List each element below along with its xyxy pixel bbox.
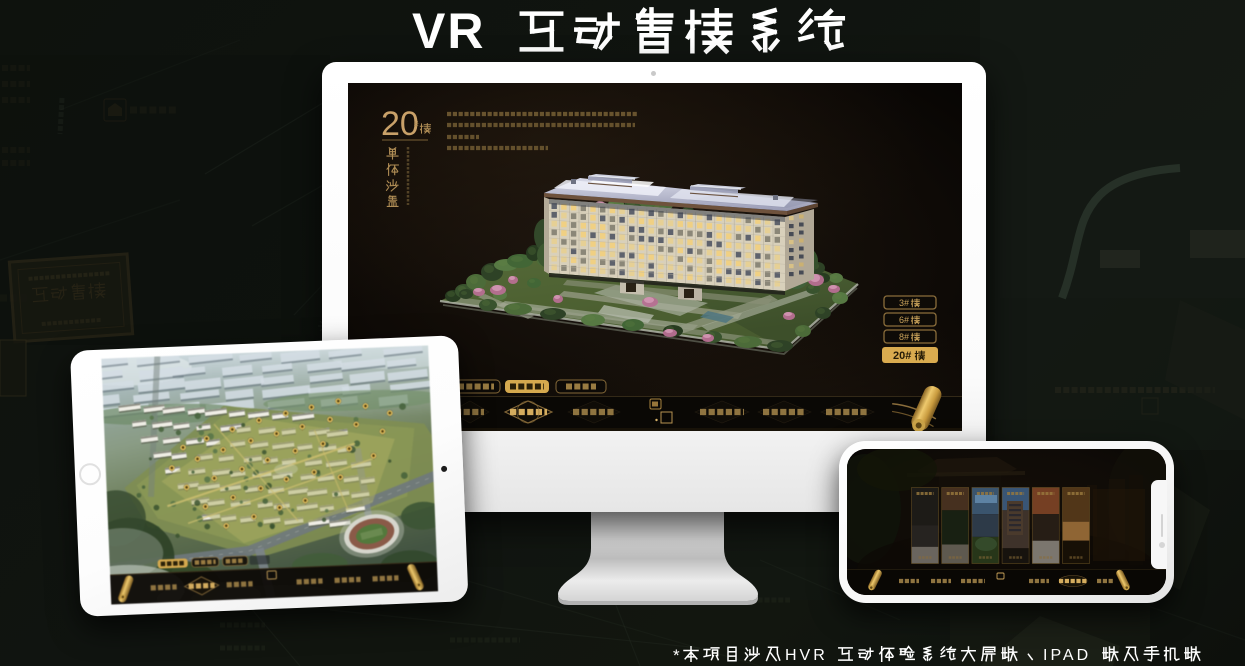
svg-text:8#: 8# [899,332,909,342]
svg-text:#: # [414,120,419,129]
svg-text:VR: VR [412,3,485,55]
svg-text:*: * [673,646,680,665]
svg-text:3#: 3# [899,298,909,308]
svg-text:20#: 20# [893,350,911,362]
svg-text:IPAD: IPAD [1043,647,1091,664]
svg-text:HVR: HVR [785,647,828,664]
svg-text:6#: 6# [899,315,909,325]
